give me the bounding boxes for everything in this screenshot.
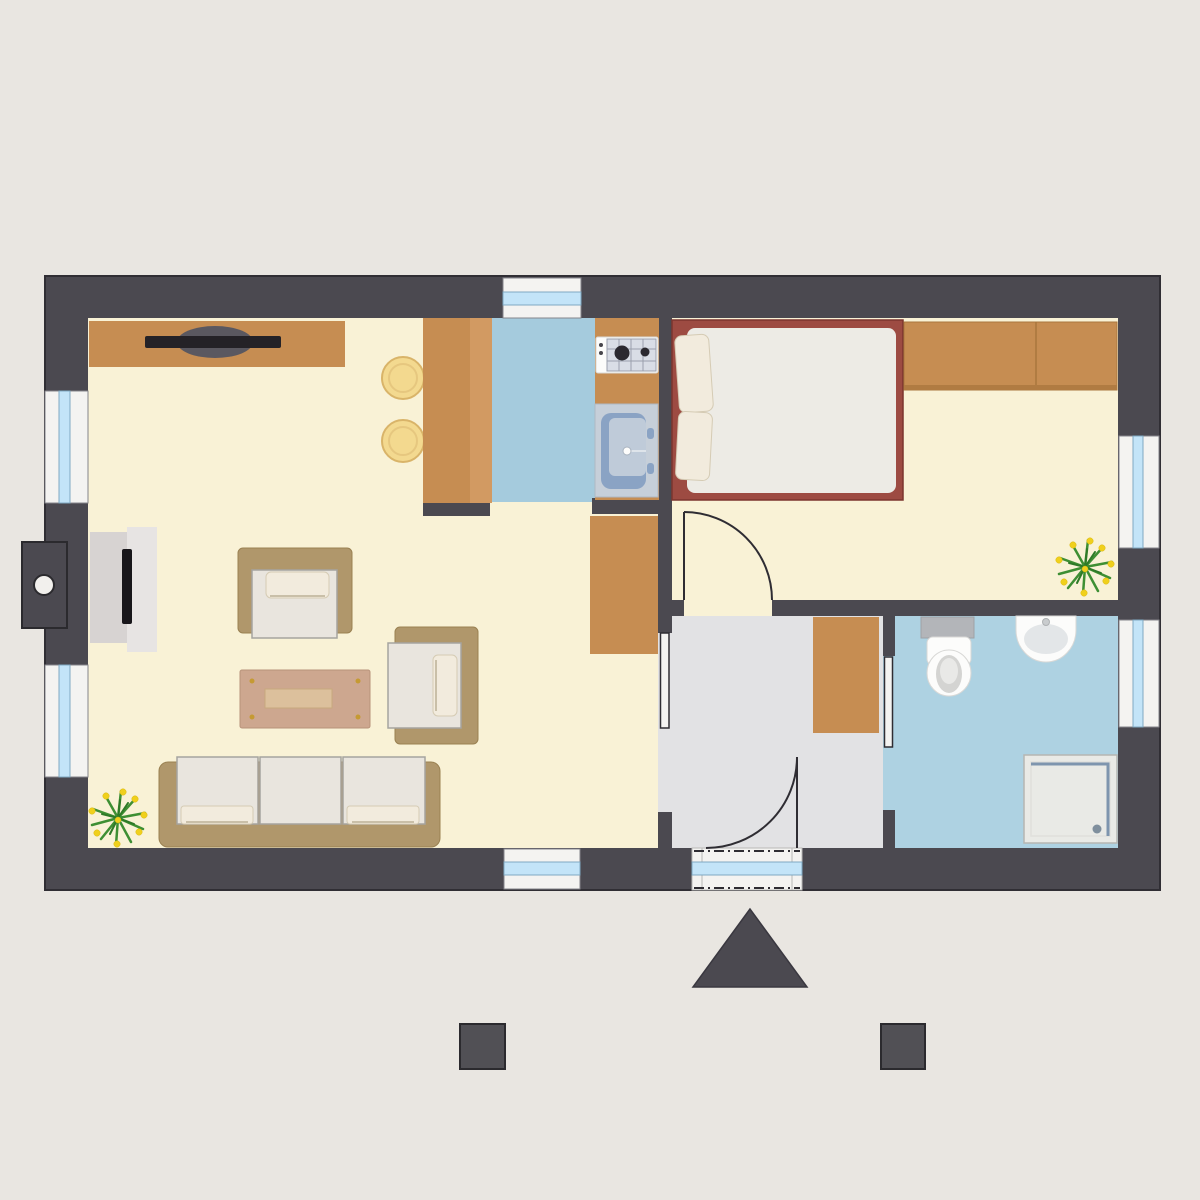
shower — [1024, 755, 1117, 843]
chimney-flue-icon — [34, 575, 54, 595]
soundbar-icon — [145, 336, 281, 348]
table-dot — [250, 679, 255, 684]
living-room-sliding-door — [661, 633, 670, 728]
entrance-marker-triangle-icon — [693, 909, 807, 987]
sink-handle — [647, 428, 654, 439]
coffee-table — [240, 670, 370, 728]
window-glass — [59, 665, 70, 777]
armchair-top — [238, 548, 352, 638]
sofa — [159, 757, 440, 847]
bar-counter — [423, 318, 492, 503]
sink-handle — [647, 463, 654, 474]
toilet-cistern — [921, 617, 974, 638]
bathroom-sliding-door — [885, 657, 893, 747]
tv-lowboard — [90, 527, 157, 652]
floor-plan-svg — [0, 0, 1200, 1200]
wardrobe-shadow — [904, 385, 1117, 390]
shower-tray — [1024, 755, 1117, 843]
side-cabinet — [590, 516, 658, 654]
double-bed — [672, 320, 903, 500]
kitchen-sink — [595, 404, 658, 497]
tv-icon — [122, 549, 132, 624]
window-glass — [503, 292, 581, 305]
shower-drain-icon — [1093, 825, 1102, 834]
porch-post-left — [460, 1024, 505, 1069]
porch-post-right — [881, 1024, 925, 1069]
window-glass — [504, 862, 580, 875]
window-bottom-living — [504, 849, 580, 889]
window-glass — [1133, 620, 1143, 727]
bar-counter-highlight — [470, 318, 492, 503]
sideboard — [89, 321, 345, 367]
window-top-kitchen — [503, 278, 581, 318]
kitchen-wall-stub-right — [592, 498, 659, 514]
washbasin-bowl — [1024, 624, 1068, 654]
floor-plan-canvas — [0, 0, 1200, 1200]
toilet-bowl-inner2 — [940, 658, 958, 684]
armchair-right — [388, 627, 478, 744]
window-left-upper — [45, 391, 88, 503]
tray — [265, 689, 332, 708]
window-glass — [1133, 436, 1143, 548]
bed-pillow — [674, 334, 713, 413]
window-left-lower — [45, 665, 88, 777]
hallway-cabinet — [813, 617, 879, 733]
table-dot — [250, 715, 255, 720]
sofa-cushion — [260, 757, 341, 824]
bed-pillow — [675, 411, 713, 481]
burner-large — [615, 346, 630, 361]
window-glass — [59, 391, 70, 503]
burner-small — [641, 348, 650, 357]
tv-lowboard-left — [90, 532, 127, 643]
kitchen-floor — [492, 318, 595, 502]
entrance-door-glazing — [692, 862, 802, 875]
wardrobe — [904, 322, 1117, 390]
faucet-icon — [623, 447, 631, 455]
bedroom-doorway-floor — [684, 600, 772, 616]
window-right-bathroom — [1119, 620, 1159, 727]
bed-mattress — [687, 328, 896, 493]
cooktop — [596, 337, 658, 373]
table-dot — [356, 715, 361, 720]
cooktop-knob — [599, 343, 603, 347]
window-right-bedroom — [1119, 436, 1159, 548]
wardrobe-body — [904, 322, 1117, 390]
armchair-pillow — [266, 572, 329, 598]
chimney — [22, 542, 67, 628]
table-dot — [356, 679, 361, 684]
washbasin-faucet-icon — [1043, 619, 1050, 626]
cooktop-knob — [599, 351, 603, 355]
